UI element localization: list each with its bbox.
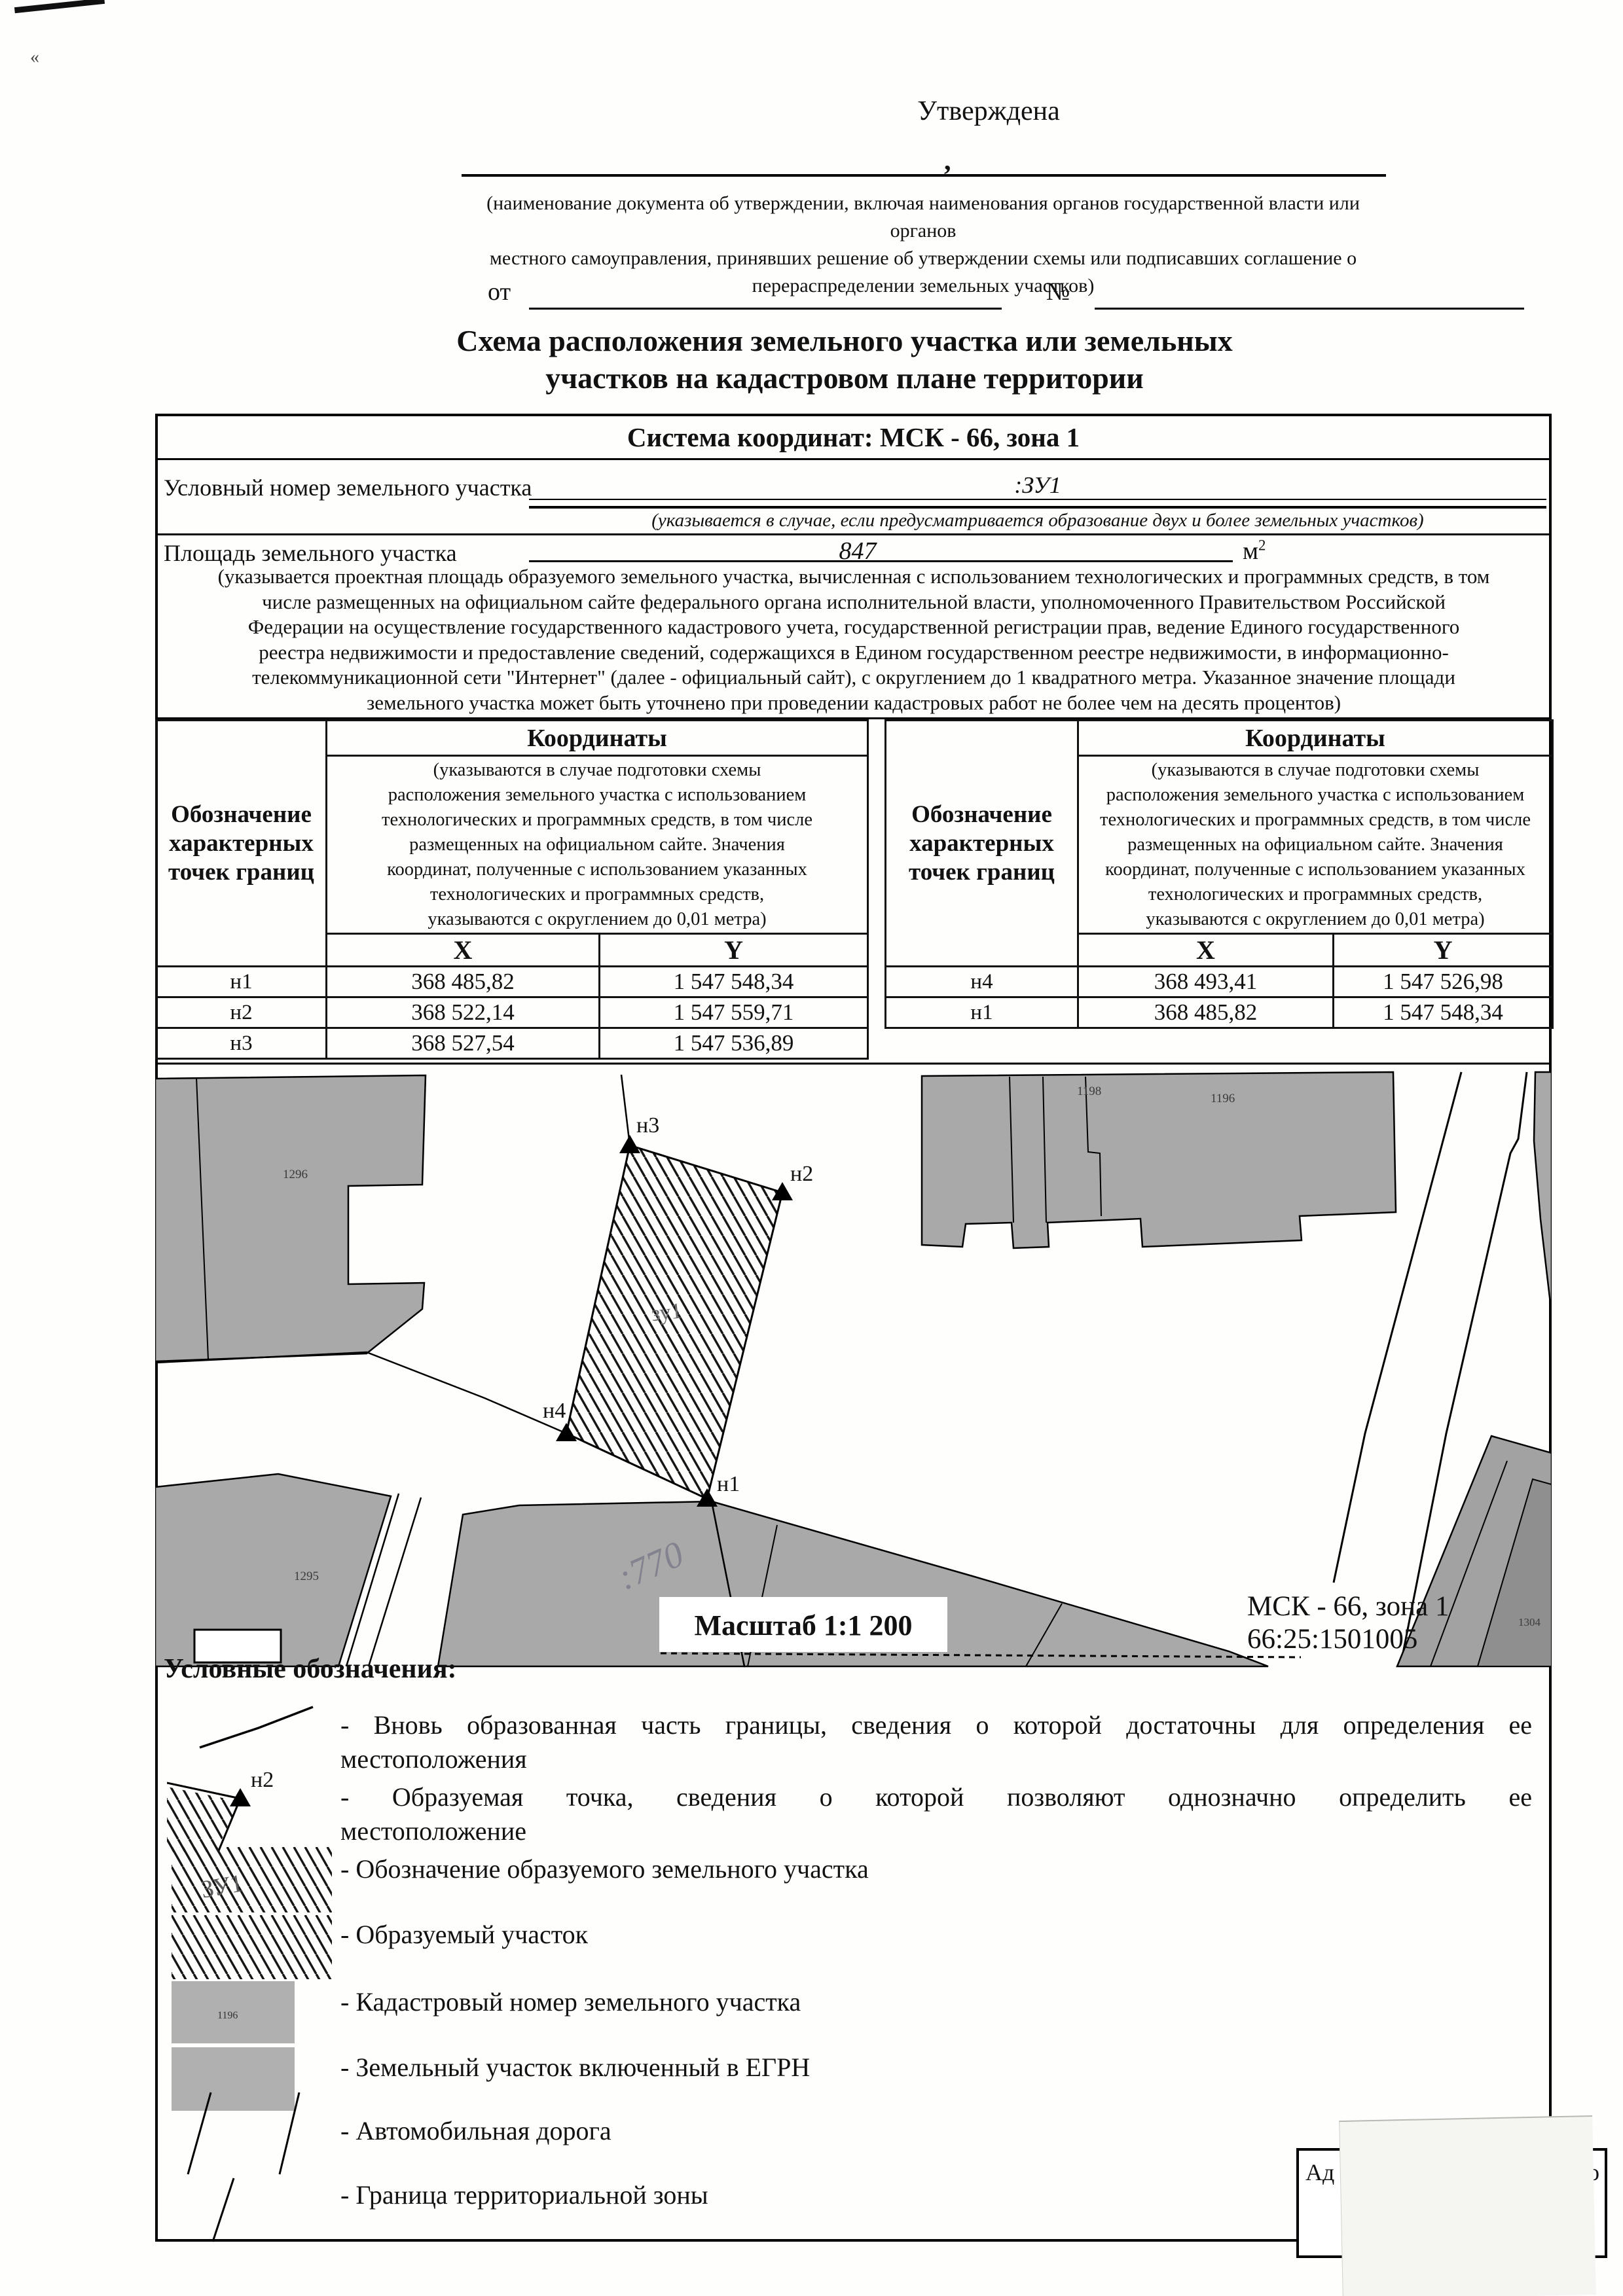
parcel-top-left bbox=[155, 1075, 426, 1361]
formed-plot-symbol bbox=[172, 1915, 332, 1979]
plot-designation-symbol: ЗУ1 bbox=[172, 1847, 332, 1912]
number-label: № bbox=[1046, 278, 1070, 306]
parcel-number: 1295 bbox=[294, 1570, 319, 1583]
new-boundary-symbol bbox=[196, 1702, 318, 1753]
coords-note-line: технологических и программных средств, bbox=[327, 882, 867, 907]
point-cell: н4 bbox=[886, 967, 1078, 997]
cadastral-map: 1296 1198 1196 1304 1295 :770 bbox=[155, 1059, 1552, 1668]
document-title: Схема расположения земельного участка ил… bbox=[314, 322, 1375, 397]
designation-line: характерных bbox=[157, 829, 325, 858]
table-row: н4 368 493,41 1 547 526,98 bbox=[886, 967, 1553, 997]
approval-underline bbox=[462, 174, 1386, 177]
point-cell: н1 bbox=[156, 967, 327, 997]
legend-item-text: - Образуемая точка, сведения о которой п… bbox=[340, 1780, 1532, 1814]
title-line-2: участков на кадастровом плане территории bbox=[314, 359, 1375, 397]
coords-note-line: размещенных на официальном сайте. Значен… bbox=[327, 833, 867, 857]
area-unit: м2 bbox=[1243, 537, 1266, 565]
parcel-number: 1296 bbox=[283, 1168, 308, 1181]
road-line-symbol bbox=[280, 2092, 299, 2174]
designation-line: Обозначение bbox=[157, 800, 325, 829]
point-label-n2: н2 bbox=[790, 1162, 813, 1186]
area-note-line: (указывается проектная площадь образуемо… bbox=[160, 564, 1547, 590]
y-cell: 1 547 536,89 bbox=[600, 1028, 868, 1059]
legend-item-text: - Земельный участок включенный в ЕГРН bbox=[340, 2051, 1532, 2085]
point-label-n4: н4 bbox=[543, 1399, 566, 1423]
area-note-line: реестра недвижимости и предоставление св… bbox=[160, 640, 1547, 666]
area-unit-base: м bbox=[1243, 537, 1258, 565]
legend-item-text: - Обозначение образуемого земельного уча… bbox=[340, 1852, 1532, 1886]
legend-item-text: местоположение bbox=[340, 1814, 1532, 1848]
parcel-number: 1196 bbox=[1211, 1092, 1235, 1105]
scan-artifact-mark: « bbox=[30, 47, 39, 68]
hatch-block bbox=[172, 1847, 332, 1912]
parcel-right-sliver bbox=[1534, 1072, 1552, 1314]
point-cell: н2 bbox=[156, 997, 327, 1028]
territorial-zone-symbol bbox=[193, 2176, 278, 2245]
y-cell: 1 547 526,98 bbox=[1334, 967, 1553, 997]
coords-note-line: координат, полученные с использованием у… bbox=[1079, 857, 1552, 882]
coordinates-header: Координаты bbox=[1078, 721, 1553, 756]
value-underline bbox=[529, 499, 1546, 500]
hatch-block bbox=[172, 1915, 332, 1979]
coordinates-table-left: Обозначение характерных точек границ Коо… bbox=[155, 719, 869, 1060]
approval-note-line: перераспределении земельных участков) bbox=[458, 272, 1388, 300]
parcel-top-right bbox=[922, 1072, 1396, 1248]
coords-note-line: (указываются в случае подготовки схемы bbox=[1079, 758, 1552, 783]
legend-item-text: - Образуемый участок bbox=[340, 1918, 1532, 1952]
y-column-header: Y bbox=[600, 934, 868, 967]
row-divider bbox=[155, 533, 1552, 535]
from-underline bbox=[529, 308, 1002, 310]
area-note-line: телекоммуникационной сети "Интернет" (да… bbox=[160, 665, 1547, 691]
designation-line: точек границ bbox=[886, 858, 1077, 887]
boundary-line bbox=[621, 1075, 630, 1145]
boundary-line-symbol bbox=[200, 1707, 313, 1748]
coords-note-line: координат, полученные с использованием у… bbox=[327, 857, 867, 882]
x-cell: 368 485,82 bbox=[1078, 997, 1334, 1028]
road-edge-line bbox=[155, 1352, 566, 1433]
point-label-n3: н3 bbox=[636, 1113, 659, 1138]
coordinates-table-right: Обозначение характерных точек границ Коо… bbox=[884, 719, 1554, 1029]
number-underline bbox=[1095, 308, 1524, 310]
legend-item-text: - Кадастровый номер земельного участка bbox=[340, 1985, 1532, 2019]
point-label-n1: н1 bbox=[717, 1472, 740, 1496]
title-line-1: Схема расположения земельного участка ил… bbox=[314, 322, 1375, 359]
coords-note-line: расположения земельного участка с исполь… bbox=[1079, 783, 1552, 808]
point-triangle-n3 bbox=[619, 1135, 640, 1153]
stamp-text-left-fragment: Ад bbox=[1305, 2159, 1334, 2186]
x-cell: 368 485,82 bbox=[327, 967, 600, 997]
coords-note-line: указываются с округлением до 0,01 метра) bbox=[1079, 907, 1552, 932]
x-column-header: X bbox=[327, 934, 600, 967]
coordinates-note: (указываются в случае подготовки схемы р… bbox=[327, 756, 868, 934]
coordinates-note: (указываются в случае подготовки схемы р… bbox=[1078, 756, 1553, 934]
coordinate-system-header: Система координат: МСК - 66, зона 1 bbox=[155, 422, 1552, 453]
y-cell: 1 547 548,34 bbox=[1334, 997, 1553, 1028]
approval-note-line: местного самоуправления, принявших решен… bbox=[458, 245, 1388, 272]
scan-artifact-streak bbox=[14, 0, 105, 13]
legend-heading: Условные обозначения: bbox=[164, 1653, 457, 1685]
approved-label: Утверждена bbox=[805, 96, 1172, 127]
conditional-number-note: (указывается в случае, если предусматрив… bbox=[529, 510, 1546, 531]
approval-note: (наименование документа об утверждении, … bbox=[458, 190, 1388, 300]
coords-note-line: указываются с округлением до 0,01 метра) bbox=[327, 907, 867, 932]
area-label: Площадь земельного участка bbox=[164, 539, 457, 567]
table-row: н3 368 527,54 1 547 536,89 bbox=[156, 1028, 868, 1059]
quarter-number: 66:25:1501005 bbox=[1247, 1624, 1417, 1655]
x-cell: 368 522,14 bbox=[327, 997, 600, 1028]
designation-line: характерных bbox=[886, 829, 1077, 858]
approval-note-line: (наименование документа об утверждении, … bbox=[458, 190, 1388, 245]
designation-header: Обозначение характерных точек границ bbox=[156, 721, 327, 967]
area-underline bbox=[529, 560, 1233, 562]
point-symbol-label: н2 bbox=[251, 1768, 274, 1792]
point-cell: н3 bbox=[156, 1028, 327, 1059]
x-cell: 368 527,54 bbox=[327, 1028, 600, 1059]
cadastral-symbol-number: 1196 bbox=[217, 2010, 238, 2022]
parcel-number: 1304 bbox=[1518, 1616, 1541, 1628]
coords-note-line: расположения земельного участка с исполь… bbox=[327, 783, 867, 808]
coords-note-line: технологических и программных средств, в… bbox=[327, 808, 867, 833]
designation-line: точек границ bbox=[157, 858, 325, 887]
cadastral-number-symbol: 1196 bbox=[172, 1981, 295, 2043]
y-cell: 1 547 548,34 bbox=[600, 967, 868, 997]
row-divider bbox=[155, 458, 1552, 460]
area-note: (указывается проектная площадь образуемо… bbox=[160, 564, 1547, 715]
coords-note-line: размещенных на официальном сайте. Значен… bbox=[1079, 833, 1552, 857]
from-label: от bbox=[488, 278, 511, 306]
coordinates-header: Координаты bbox=[327, 721, 868, 756]
scale-label: Масштаб 1:1 200 bbox=[694, 1609, 912, 1641]
area-note-line: числе размещенных на официальном сайте ф… bbox=[160, 590, 1547, 615]
scanned-document-page: « Утверждена , (наименование документа о… bbox=[0, 0, 1623, 2296]
plot-label: зу1 bbox=[650, 1299, 683, 1327]
table-row: н1 368 485,82 1 547 548,34 bbox=[886, 997, 1553, 1028]
road-symbol bbox=[172, 2089, 322, 2178]
y-cell: 1 547 559,71 bbox=[600, 997, 868, 1028]
coords-note-line: технологических и программных средств, в… bbox=[1079, 808, 1552, 833]
table-row: н2 368 522,14 1 547 559,71 bbox=[156, 997, 868, 1028]
value-underline-2 bbox=[529, 506, 1546, 509]
area-note-line: Федерации на осуществление государственн… bbox=[160, 615, 1547, 640]
road-line-symbol bbox=[188, 2092, 211, 2174]
x-cell: 368 493,41 bbox=[1078, 967, 1334, 997]
covering-paper-sheet bbox=[1339, 2115, 1596, 2296]
zone-line-symbol bbox=[213, 2178, 234, 2242]
coords-note-line: технологических и программных средств, bbox=[1079, 882, 1552, 907]
parcel-number: 1198 bbox=[1077, 1085, 1101, 1098]
area-unit-sup: 2 bbox=[1258, 537, 1266, 553]
point-cell: н1 bbox=[886, 997, 1078, 1028]
area-note-line: земельного участка может быть уточнено п… bbox=[160, 691, 1547, 716]
conditional-number-value: :ЗУ1 bbox=[529, 471, 1546, 499]
legend-item-text: - Вновь образованная часть границы, свед… bbox=[340, 1708, 1532, 1742]
coords-note-line: (указываются в случае подготовки схемы bbox=[327, 758, 867, 783]
designation-header: Обозначение характерных точек границ bbox=[886, 721, 1078, 967]
conditional-number-label: Условный номер земельного участка bbox=[164, 474, 532, 501]
zone-label: МСК - 66, зона 1 bbox=[1247, 1591, 1450, 1622]
y-column-header: Y bbox=[1334, 934, 1553, 967]
designation-line: Обозначение bbox=[886, 800, 1077, 829]
comma-mark: , bbox=[944, 145, 951, 177]
legend-item-text: местоположения bbox=[340, 1742, 1532, 1776]
x-column-header: X bbox=[1078, 934, 1334, 967]
table-row: н1 368 485,82 1 547 548,34 bbox=[156, 967, 868, 997]
formed-point-symbol: н2 bbox=[167, 1761, 318, 1852]
